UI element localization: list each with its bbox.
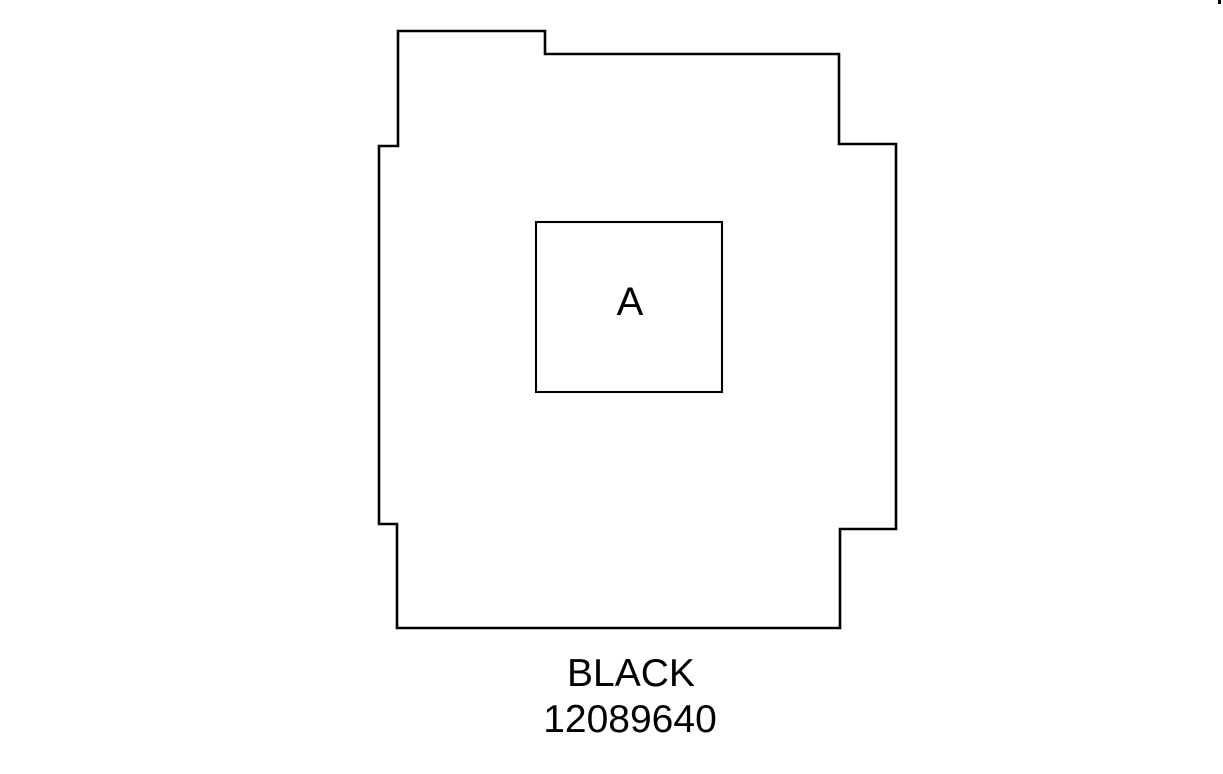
cavity-a-label: A: [617, 280, 644, 324]
part-diagram-canvas: A BLACK 12089640: [0, 0, 1223, 774]
caption-color-label: BLACK: [567, 652, 695, 695]
connector-diagram-page: A BLACK 12089640: [0, 0, 1223, 774]
caption-part-number: 12089640: [543, 698, 717, 741]
page-edge-artifact-mark: [1218, 0, 1221, 4]
